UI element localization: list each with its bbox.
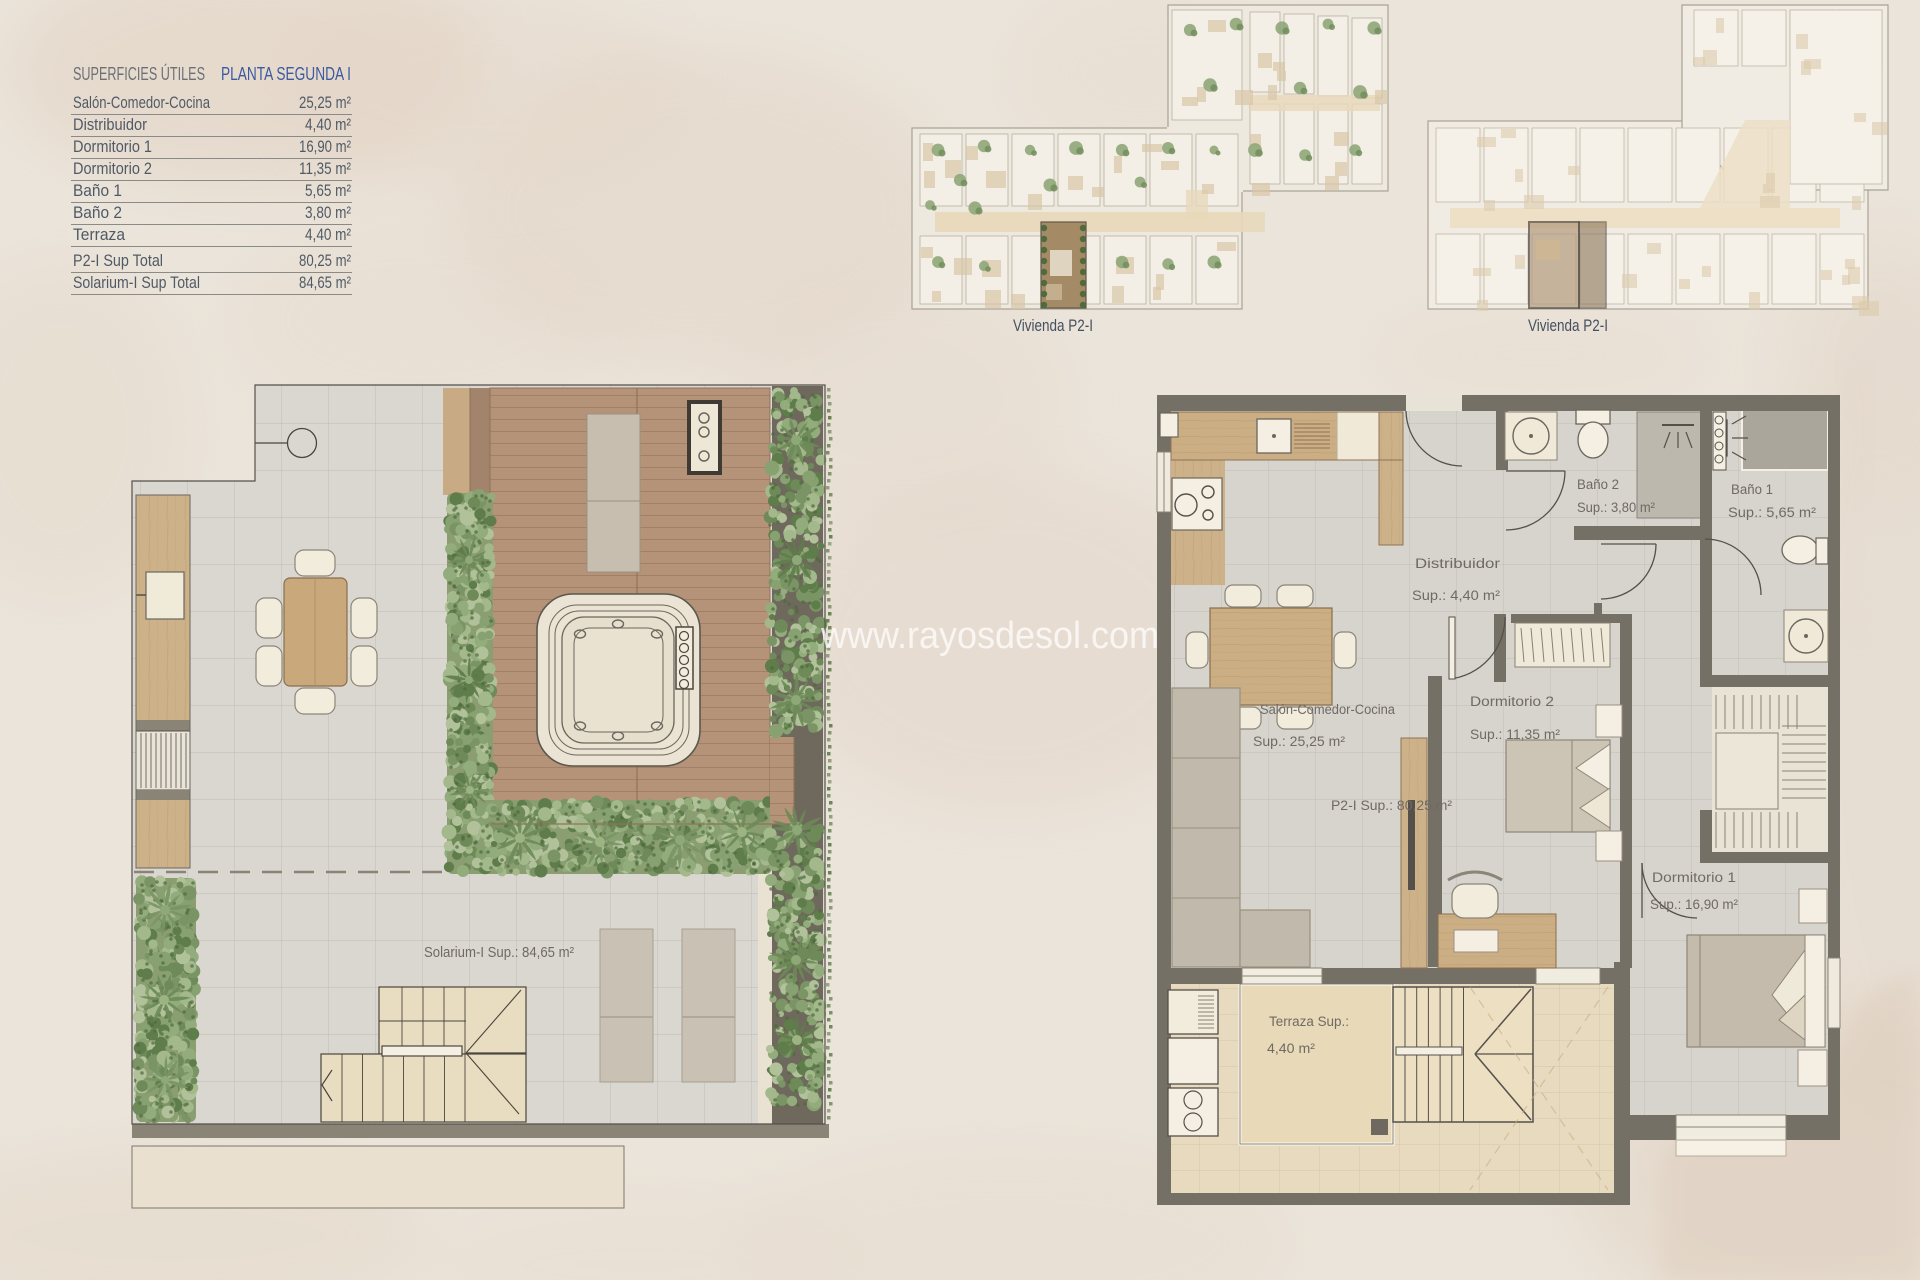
svg-text:Baño 2: Baño 2	[1577, 477, 1619, 492]
svg-text:PLANTA SEGUNDA I: PLANTA SEGUNDA I	[221, 63, 351, 84]
svg-text:Salón-Comedor-Cocina: Salón-Comedor-Cocina	[1260, 702, 1395, 717]
svg-text:Dormitorio 2: Dormitorio 2	[1470, 694, 1554, 709]
svg-text:4,40 m²: 4,40 m²	[305, 226, 351, 244]
svg-text:Sup.: 5,65 m²: Sup.: 5,65 m²	[1728, 505, 1817, 520]
svg-text:4,40 m²: 4,40 m²	[1267, 1041, 1316, 1056]
svg-text:P2-I Sup.: 80,25 m²: P2-I Sup.: 80,25 m²	[1331, 798, 1453, 813]
svg-text:Solarium-I Sup Total: Solarium-I Sup Total	[73, 274, 200, 292]
svg-text:Dormitorio 1: Dormitorio 1	[73, 138, 152, 156]
svg-text:84,65 m²: 84,65 m²	[299, 274, 351, 292]
svg-text:25,25 m²: 25,25 m²	[299, 94, 351, 112]
svg-text:Sup.: 25,25 m²: Sup.: 25,25 m²	[1253, 734, 1346, 749]
svg-text:Salón-Comedor-Cocina: Salón-Comedor-Cocina	[73, 94, 211, 112]
svg-text:SUPERFICIES ÚTILES: SUPERFICIES ÚTILES	[73, 63, 205, 84]
svg-text:Baño 2: Baño 2	[73, 204, 122, 222]
svg-text:4,40 m²: 4,40 m²	[305, 116, 351, 134]
svg-text:Distribuidor: Distribuidor	[1415, 556, 1501, 571]
svg-text:Distribuidor: Distribuidor	[73, 116, 147, 134]
svg-text:Terraza: Terraza	[73, 226, 126, 244]
svg-text:3,80 m²: 3,80 m²	[305, 204, 351, 222]
svg-text:11,35 m²: 11,35 m²	[299, 160, 351, 178]
svg-text:Dormitorio 1: Dormitorio 1	[1652, 870, 1736, 885]
svg-text:16,90 m²: 16,90 m²	[299, 138, 351, 156]
svg-text:Baño 1: Baño 1	[73, 182, 122, 200]
svg-text:80,25 m²: 80,25 m²	[299, 252, 351, 270]
svg-text:Vivienda P2-I: Vivienda P2-I	[1013, 317, 1093, 335]
svg-text:Solarium-I Sup.: 84,65 m²: Solarium-I Sup.: 84,65 m²	[424, 945, 574, 961]
svg-text:Sup.: 16,90 m²: Sup.: 16,90 m²	[1650, 897, 1738, 912]
svg-text:5,65 m²: 5,65 m²	[305, 182, 351, 200]
svg-text:Sup.: 4,40 m²: Sup.: 4,40 m²	[1412, 588, 1501, 603]
svg-text:P2-I Sup Total: P2-I Sup Total	[73, 252, 163, 270]
svg-text:Terraza Sup.:: Terraza Sup.:	[1269, 1014, 1349, 1029]
svg-text:Baño 1: Baño 1	[1731, 482, 1773, 497]
svg-text:www.rayosdesol.com: www.rayosdesol.com	[820, 615, 1159, 657]
svg-text:Dormitorio 2: Dormitorio 2	[73, 160, 152, 178]
svg-text:Vivienda P2-I: Vivienda P2-I	[1528, 317, 1608, 335]
svg-text:Sup.: 3,80 m²: Sup.: 3,80 m²	[1577, 500, 1655, 515]
svg-text:Sup.: 11,35 m²: Sup.: 11,35 m²	[1470, 727, 1561, 742]
